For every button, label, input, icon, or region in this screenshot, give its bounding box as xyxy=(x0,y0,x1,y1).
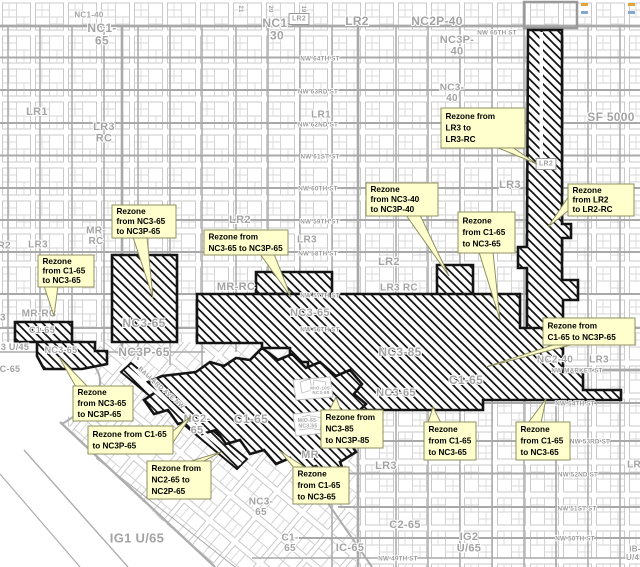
zone-label: LR3 xyxy=(297,235,317,246)
zone-label-text: C1-65 xyxy=(234,412,268,426)
map-highlight-tick xyxy=(581,11,588,14)
zone-label-text: U/65 xyxy=(457,543,481,555)
zone-label-text: LR2 xyxy=(539,161,553,168)
zone-label: C1-65 xyxy=(234,412,268,426)
street-label-text: NW 50TH ST xyxy=(555,536,594,543)
callout-text-line: LR3 to xyxy=(446,124,471,133)
callout-text-line: to NC3P-40 xyxy=(371,205,415,214)
callout-text-line: Rezone xyxy=(429,425,459,434)
zone-label-text: NC3-65 xyxy=(376,387,416,399)
callout-text-line: from NC3-65 xyxy=(117,217,166,226)
callout-text-line: NC2P-65 xyxy=(152,487,186,496)
zone-label-text: NC3-65 xyxy=(298,423,317,429)
callout-text-line: Rezone xyxy=(371,185,401,194)
map-highlight-tick xyxy=(628,11,635,14)
zone-label: MR-RC xyxy=(217,281,255,293)
zone-label-text: LR3 xyxy=(93,121,115,133)
zone-label-text: LR2 xyxy=(378,256,400,268)
callout-text-line: from NC3-65 xyxy=(78,399,127,408)
callout-text-line: Rezone xyxy=(78,388,108,397)
street-label: NW 50TH ST xyxy=(555,536,594,543)
street-label-text: NW 57TH ST xyxy=(300,293,339,300)
zone-label: NC2P-40 xyxy=(411,14,462,28)
street-label-text: NW 61ST ST xyxy=(300,154,339,161)
street-label: NW 53RD ST xyxy=(570,439,610,446)
callout-text-line: from C1-65 xyxy=(43,267,86,276)
zone-label-text: LR3 xyxy=(0,313,6,324)
zone-label-text: NC2P-40 xyxy=(411,14,462,28)
zone-label: LR2 xyxy=(289,14,309,25)
street-label-text: NW 59TH ST xyxy=(300,219,339,226)
street-label-text: 21 xyxy=(237,5,243,13)
zone-label: LR3 RC xyxy=(380,283,418,294)
street-label: NW 54TH ST xyxy=(555,401,594,408)
street-label-text: 20 xyxy=(267,5,273,13)
zone-label: NC3-85 xyxy=(378,345,421,359)
zone-label-text: LR3 xyxy=(627,460,640,471)
zone-label-text: 65 xyxy=(95,34,109,48)
callout-text-line: NC3-65 to NC3P-65 xyxy=(209,244,284,253)
callout-text-line: Rezone from C1-65 xyxy=(93,430,168,439)
zone-label-text: C1- xyxy=(281,533,298,544)
zone-label: NC3-65 xyxy=(45,345,78,355)
callout-text-line: Rezone xyxy=(573,186,603,195)
street-label-text: NW 52ND ST xyxy=(558,472,598,479)
zone-label-text: 65 xyxy=(284,543,296,554)
callout-text-line: to NC3P-65 xyxy=(117,227,161,236)
zone-label-text: C1-65 xyxy=(29,325,55,335)
street-label: NW 65TH ST xyxy=(477,30,516,37)
callout-text-line: from LR2 xyxy=(573,196,609,205)
callout-text-line: Rezone from xyxy=(326,413,376,422)
callout-text-line: from C1-65 xyxy=(429,437,472,446)
zone-label: LR3 xyxy=(589,355,609,366)
zone-label-text: MR- xyxy=(86,226,106,237)
callout-text-line: Rezone xyxy=(117,207,147,216)
street-label: NW 57TH ST xyxy=(300,293,339,300)
zone-label-text: 40 xyxy=(451,46,464,58)
zone-label: LR1 xyxy=(26,106,48,118)
street-label: NW 61ST ST xyxy=(300,154,339,161)
callout-text-line: NC3-85 xyxy=(326,425,355,434)
zone-label-text: NC3-65 xyxy=(312,390,330,395)
zone-label: C-65 xyxy=(0,364,20,374)
street-label: 20 xyxy=(267,5,273,13)
street-label: 21 xyxy=(237,5,243,13)
zone-label: LR2 xyxy=(229,214,251,226)
zone-label-text: NC2-40 xyxy=(537,355,573,366)
callout-text-line: to NC3P-85 xyxy=(326,436,370,445)
street-label-text: NW 65TH ST xyxy=(477,30,516,37)
street-label-text: NW 58TH ST xyxy=(298,251,337,258)
zone-label: LR3 xyxy=(0,313,6,324)
callout-text-line: NC2-65 to xyxy=(152,476,190,485)
zone-label: NC3-65 xyxy=(122,316,165,330)
zone-label: 3 U/45 xyxy=(1,342,29,352)
rezone-area-band-57th-58th xyxy=(256,272,332,294)
zone-label-text: LR1 xyxy=(26,106,48,118)
zone-label: LR3 xyxy=(375,460,397,472)
callout-text-line: LR3-RC xyxy=(446,135,476,144)
street-label-text: NW MARKET ST xyxy=(551,368,602,375)
zone-label-text: MR-RC xyxy=(217,281,255,293)
zone-label: LR2 xyxy=(536,159,556,170)
zone-label-text: NC3-65 xyxy=(290,307,330,319)
zone-label-text: NC1-40 xyxy=(74,11,104,20)
street-label: NW 60TH ST xyxy=(298,186,337,193)
zone-label-text: LR2 xyxy=(292,16,306,23)
street-label-text: NW 56TH ST xyxy=(300,327,339,334)
zone-label-text: LR1 xyxy=(311,110,331,121)
zone-label-text: NC3-85 xyxy=(378,345,421,359)
zone-label: LR3 xyxy=(627,460,640,471)
callout-text-line: Rezone from xyxy=(209,232,259,241)
callout-text-line: from C1-65 xyxy=(521,437,564,446)
street-label-text: NW 63RD ST xyxy=(298,89,338,96)
zone-label-text: MR xyxy=(301,449,319,461)
callout-text-line: from NC3-40 xyxy=(371,195,420,204)
rezone-map-page: NC1-40NC1-65NC1-30LR2LR2NC2P-40NC3P-40NC… xyxy=(0,0,640,567)
zone-label-text: MR-RC xyxy=(22,309,57,320)
zone-label-text: LR3 xyxy=(589,355,609,366)
street-label-text: NW 51ST ST xyxy=(557,506,596,513)
zone-label-text: 40 xyxy=(446,93,458,104)
zone-label-text: SF 5000 xyxy=(587,110,634,124)
zone-label-text: C2-65 xyxy=(389,519,420,531)
zone-label: MR xyxy=(301,449,319,461)
street-label: NW MARKET ST xyxy=(551,368,602,375)
zone-label-text: NC3- xyxy=(440,83,465,94)
zone-label: LR1 xyxy=(311,110,331,121)
zone-label-text: 65 xyxy=(255,507,267,518)
street-label: NW 56TH ST xyxy=(300,327,339,334)
zone-label: IG2U/65 xyxy=(457,531,481,555)
zone-label: NC2-40 xyxy=(537,355,573,366)
zone-label-text: RC xyxy=(88,236,103,247)
callout-text-line: to NC3P-65 xyxy=(78,410,122,419)
street-label: NW 51ST ST xyxy=(557,506,596,513)
callout-text-line: from C1-65 xyxy=(298,481,341,490)
street-label: 19 xyxy=(300,5,306,13)
zone-label-text: LR3 xyxy=(28,240,48,251)
callout-text-line: C1-65 to NC3P-65 xyxy=(548,333,617,342)
zone-label: C1-65 xyxy=(449,373,483,387)
zone-label-text: LR2 xyxy=(0,241,11,252)
callout-text-line: Rezone xyxy=(463,217,493,226)
zone-label-text: LR3 xyxy=(297,235,317,246)
zone-label-text: RC xyxy=(96,133,113,145)
zone-label: LR3 xyxy=(499,179,521,191)
street-label-text: NW 62ND ST xyxy=(298,122,338,129)
zone-label-text: IC-65 xyxy=(336,542,364,554)
street-label-text: NW 53RD ST xyxy=(570,439,610,446)
callout-text-line: to NC3-65 xyxy=(463,240,502,249)
zone-label-text: NC3-65 xyxy=(122,316,165,330)
street-label-text: NW 54TH ST xyxy=(555,401,594,408)
zone-label-text: U/45 xyxy=(626,553,640,562)
zone-label-text: NC3- xyxy=(249,497,274,508)
zone-label: IG1 U/65 xyxy=(110,531,164,546)
zone-label-text: NC3P-65 xyxy=(118,345,169,359)
callout-text-line: to NC3-65 xyxy=(429,448,468,457)
street-label: NW 63RD ST xyxy=(298,89,338,96)
map-highlight-tick xyxy=(581,3,588,6)
zone-label: MR-RC xyxy=(22,309,57,320)
street-label: NW 58TH ST xyxy=(298,251,337,258)
zone-label: MR-RC xyxy=(86,226,106,248)
zone-label: SF 5000 xyxy=(587,110,634,124)
zone-label-text: LR2 xyxy=(345,14,369,28)
callout-text-line: Rezone xyxy=(43,257,73,266)
zone-label: C1-65 xyxy=(29,325,55,335)
zone-label: C2-65 xyxy=(389,519,420,531)
zone-label: NC3-65 xyxy=(290,307,330,319)
zone-label-text: NC3P- xyxy=(440,34,475,46)
zone-label-text: NC3-65 xyxy=(45,345,78,355)
map-highlight-tick xyxy=(628,3,635,6)
zone-label: MIO-65-NC3-65 xyxy=(298,418,318,429)
zone-label-text: LR3 xyxy=(499,179,521,191)
street-label: NW 49TH ST xyxy=(378,556,417,563)
callout-text-line: Rezone xyxy=(521,425,551,434)
street-label: NW 64TH ST xyxy=(300,56,339,63)
zoning-map: NC1-40NC1-65NC1-30LR2LR2NC2P-40NC3P-40NC… xyxy=(0,0,640,567)
street-label-text: 19 xyxy=(300,5,306,13)
street-label-text: NW 64TH ST xyxy=(300,56,339,63)
street-label: NW 59TH ST xyxy=(300,219,339,226)
callout-text-line: Rezone from xyxy=(152,464,202,473)
street-label: NW 62ND ST xyxy=(298,122,338,129)
zone-label: NC3P-65 xyxy=(118,345,169,359)
street-label-text: NW 49TH ST xyxy=(378,556,417,563)
callout-text-line: from C1-65 xyxy=(463,228,506,237)
callout-text-line: to LR2-RC xyxy=(573,205,613,214)
zone-label-text: C1-65 xyxy=(449,373,483,387)
zone-label: LR3RC xyxy=(93,121,115,145)
callout-text-line: to NC3-65 xyxy=(43,276,82,285)
zone-label-text: 65 xyxy=(191,425,204,437)
zone-label-text: LR2 xyxy=(229,214,251,226)
street-label: NW 52ND ST xyxy=(558,472,598,479)
callout-text-line: to NC3-65 xyxy=(298,493,337,502)
zone-label: IC-65 xyxy=(336,542,364,554)
callout-text-line: to NC3P-65 xyxy=(93,441,137,450)
callout-text-line: Rezone from xyxy=(548,321,598,330)
callout-text-line: Rezone xyxy=(298,470,328,479)
zone-label: MIO-105-NC3-65 xyxy=(310,386,332,396)
zone-label-text: C-65 xyxy=(0,364,20,374)
zone-label: LR2 xyxy=(378,256,400,268)
zone-label: LR2 xyxy=(345,14,369,28)
callout-text-line: to NC3-65 xyxy=(521,448,560,457)
zone-label-text: 30 xyxy=(270,29,284,43)
zone-label-text: IG1 U/65 xyxy=(110,531,164,546)
zone-label-text: 3 U/45 xyxy=(1,342,29,352)
zone-label: NC1-40 xyxy=(74,11,104,20)
zone-label-text: LR3 RC xyxy=(380,283,418,294)
zone-label-text: IG2 xyxy=(460,531,479,543)
zone-label-text: LR3 xyxy=(375,460,397,472)
zone-label: LR2 xyxy=(0,241,11,252)
callout-text-line: Rezone from xyxy=(446,112,496,121)
street-label-text: NW 60TH ST xyxy=(298,186,337,193)
zone-label: LR3 xyxy=(28,240,48,251)
zone-label: NC3-65 xyxy=(376,387,416,399)
